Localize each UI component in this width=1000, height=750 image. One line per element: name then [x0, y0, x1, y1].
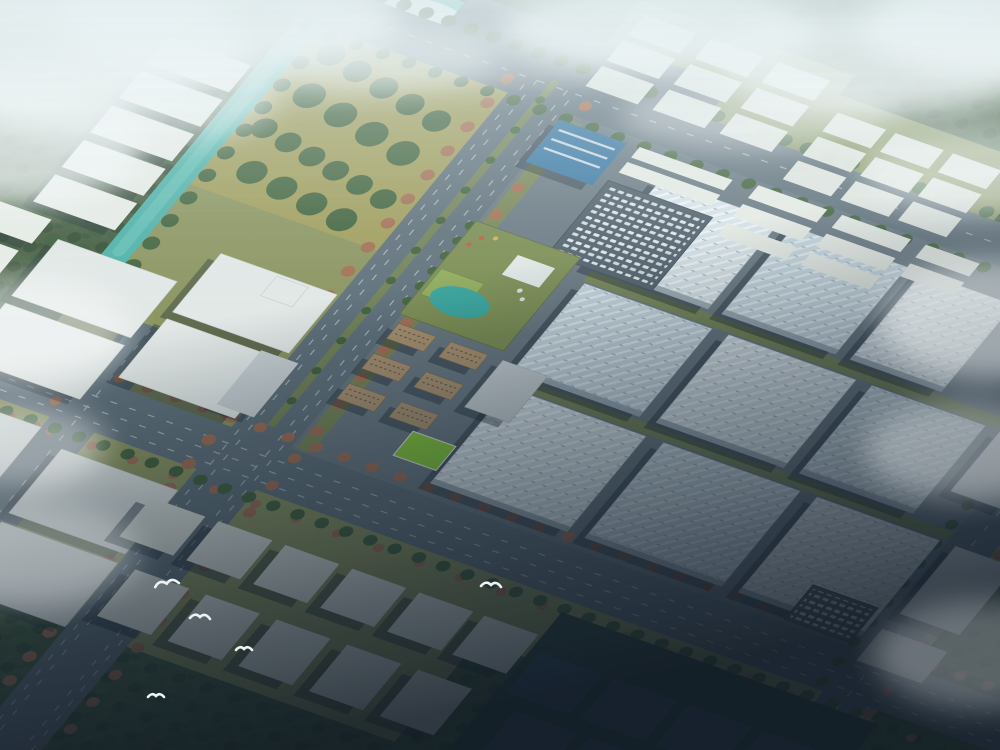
industrial-park-rendering — [0, 0, 1000, 750]
aerial-render-image — [0, 0, 1000, 750]
color-tint — [0, 0, 1000, 750]
